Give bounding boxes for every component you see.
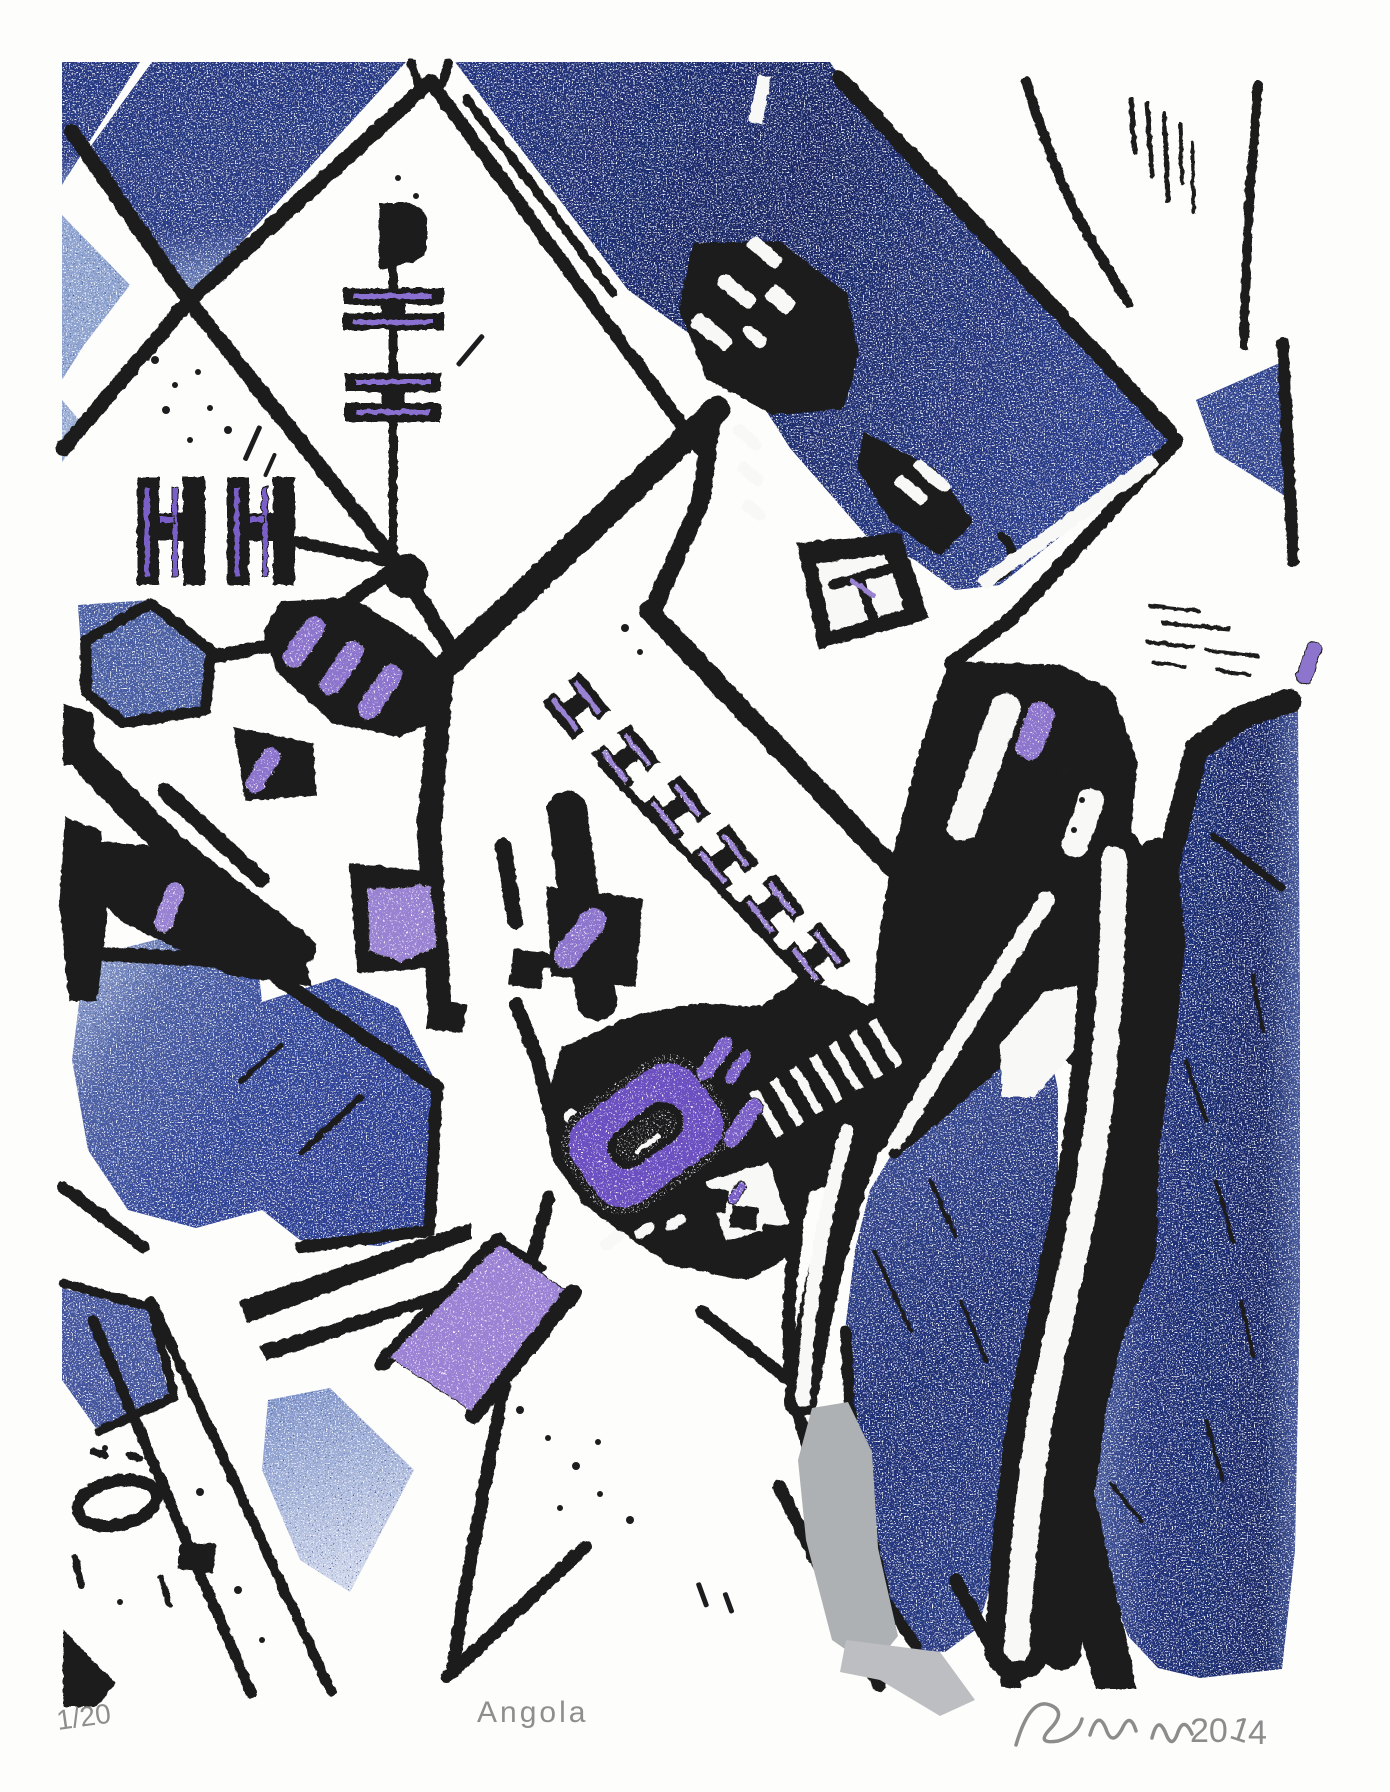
svg-text:20: 20 [1190,1712,1228,1750]
svg-text:4: 4 [1248,1714,1267,1752]
svg-text:Angola: Angola [477,1696,588,1729]
